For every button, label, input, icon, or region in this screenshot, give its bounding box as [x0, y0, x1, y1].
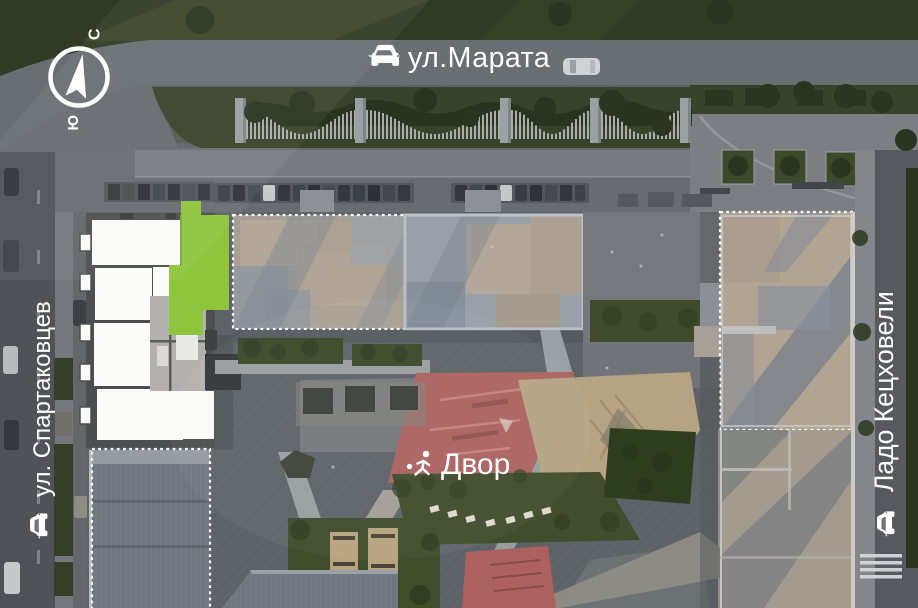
svg-text:Ладо Кецховели: Ладо Кецховели [869, 291, 899, 492]
svg-text:ул. Спартаковцев: ул. Спартаковцев [29, 301, 56, 497]
svg-text:Ю: Ю [65, 115, 82, 130]
svg-text:ул.Марата: ул.Марата [408, 42, 550, 74]
svg-text:Двор: Двор [441, 448, 510, 481]
svg-text:С: С [87, 28, 104, 40]
